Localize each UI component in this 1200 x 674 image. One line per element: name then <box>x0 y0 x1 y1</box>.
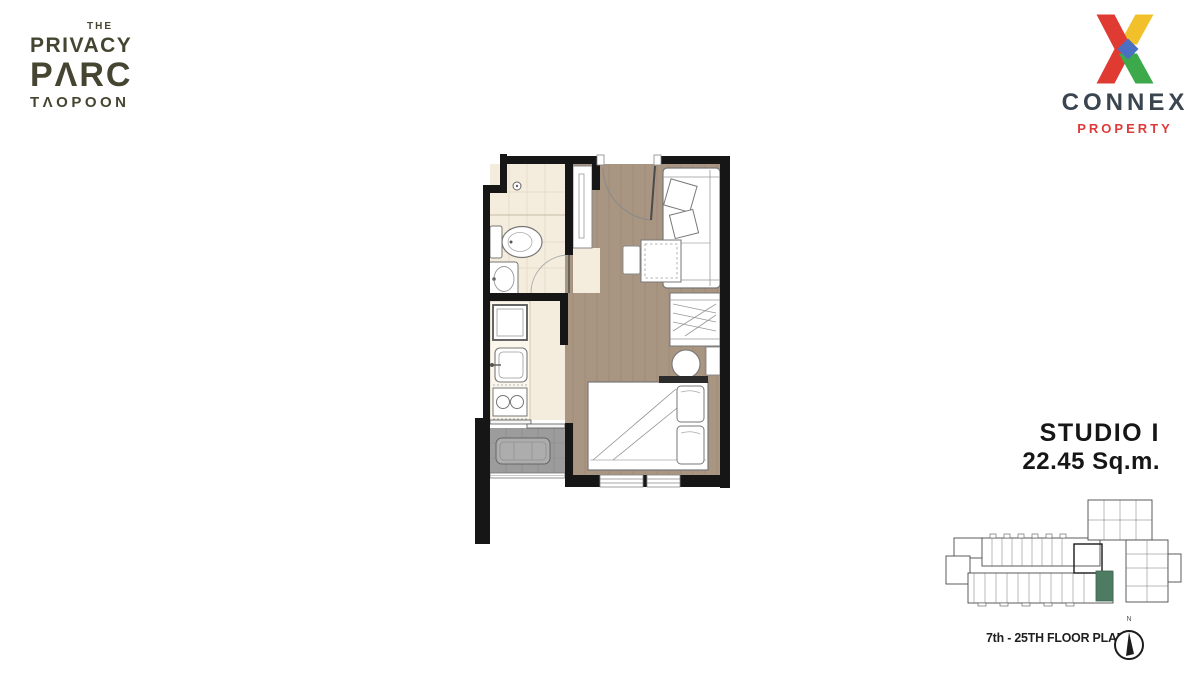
unit-type-label: STUDIO I <box>1022 419 1160 448</box>
door-jambs <box>597 155 661 165</box>
project-logo: THE PRIVACY PΛRC TΛOPOON <box>30 22 132 110</box>
ac-condenser-unit <box>496 438 550 464</box>
unit-info: STUDIO I 22.45 Sq.m. <box>1022 419 1160 475</box>
project-logo-the: THE <box>87 22 132 32</box>
refrigerator-icon <box>493 305 527 340</box>
unit-area-label: 22.45 Sq.m. <box>1022 448 1160 476</box>
shower-icon <box>513 182 521 190</box>
stove-icon <box>493 385 527 419</box>
entry-closet <box>573 166 592 248</box>
bedroom-windows <box>600 475 680 487</box>
highlighted-unit <box>1096 571 1113 601</box>
wardrobe <box>670 293 720 346</box>
north-arrow: N <box>1106 612 1152 666</box>
bed <box>588 376 708 470</box>
agency-name: CONNEX <box>1045 89 1200 117</box>
toilet-icon <box>490 226 542 258</box>
agency-logo: CONNEX PROPERTY <box>1045 10 1200 136</box>
key-plan-caption: 7th - 25TH FLOOR PLAN <box>986 630 1125 645</box>
side-shelf <box>706 347 720 375</box>
connex-x-icon <box>1086 10 1164 88</box>
round-table <box>672 350 700 378</box>
unit-floor-plan <box>473 152 745 544</box>
floorplan-brochure-page: { "project_logo": { "pre": "THE", "line1… <box>0 0 1200 674</box>
headboard <box>659 376 708 383</box>
bathroom-sink-icon <box>488 262 518 296</box>
balcony-slider-door <box>490 420 565 428</box>
agency-division: PROPERTY <box>1045 121 1200 136</box>
project-logo-taopoon: TΛOPOON <box>30 95 132 110</box>
project-logo-parc: PΛRC <box>30 58 132 92</box>
building-key-plan <box>938 498 1186 616</box>
vestibule-floor <box>573 248 600 293</box>
north-label: N <box>1126 616 1131 623</box>
balcony-rail <box>490 473 565 478</box>
project-logo-privacy: PRIVACY <box>30 35 132 56</box>
